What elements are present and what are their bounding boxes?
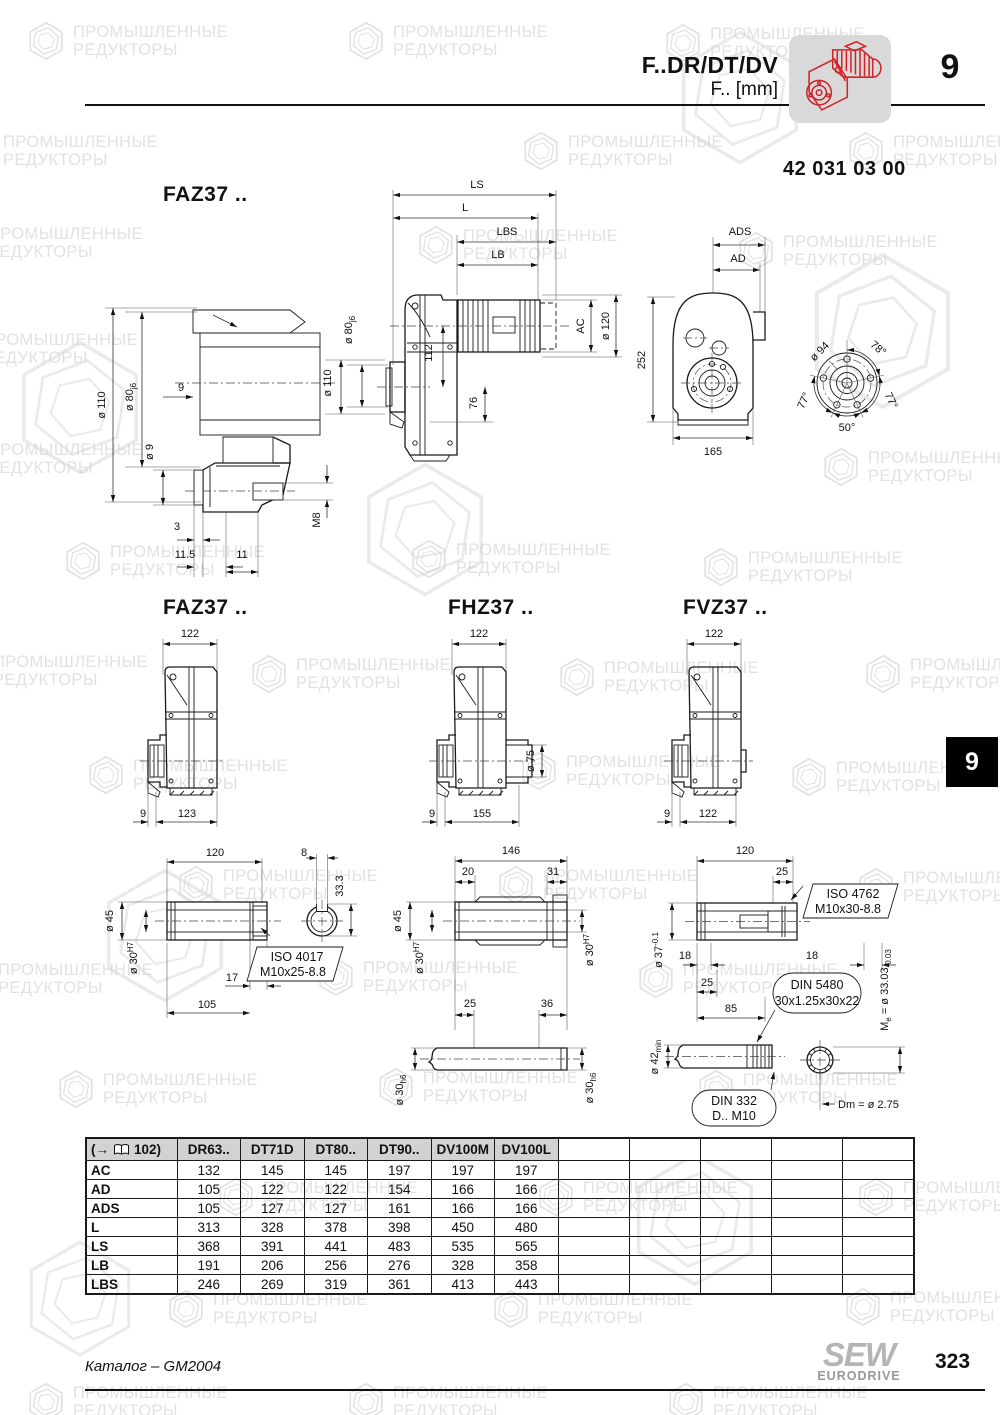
col-header: DV100M (431, 1138, 495, 1161)
dim-s2-d30h6-left: ø 30h6 (394, 1074, 408, 1105)
hub-section-view: ø 110 ø 80j6 9 ø 9 (96, 308, 335, 577)
sew-eurodrive-logo: SEW EURODRIVE (800, 1340, 918, 1382)
table-row: L 313 328 378 398 450 480 (86, 1218, 914, 1237)
dim-angle-50: 50° (839, 422, 856, 434)
empty-cell (772, 1275, 843, 1295)
empty-cell (558, 1256, 629, 1275)
col-header: DT71D (241, 1138, 305, 1161)
ref-page: 102) (134, 1142, 161, 1157)
dim-angle-78: 78° (868, 339, 888, 359)
cell: 127 (304, 1199, 368, 1218)
cell: 191 (177, 1256, 241, 1275)
eurodrive-logo-text: EURODRIVE (804, 1370, 914, 1383)
dim-s3-d37: ø 37-0.1 (651, 932, 665, 968)
dim-s2-d30-left: ø 30H7 (412, 941, 426, 974)
cell: 256 (304, 1256, 368, 1275)
dim-s2-d30h6-right: ø 30h6 (584, 1072, 598, 1103)
cell: 328 (241, 1218, 305, 1237)
dim-s2-d45: ø 45 (392, 910, 404, 932)
side-tab-number: 9 (965, 748, 979, 777)
dim-s1-8: 8 (301, 847, 307, 859)
dim-ls: LS (470, 179, 483, 191)
dim-hub-d80: ø 80j6 (124, 382, 138, 411)
dim-fhz-122: 122 (470, 628, 488, 640)
dim-hub-3: 3 (174, 521, 180, 533)
cell: 166 (431, 1199, 495, 1218)
cell: 105 (177, 1199, 241, 1218)
dim-s2-20: 20 (462, 866, 474, 878)
dim-s3-18r: 18 (806, 950, 818, 962)
dim-s2-31: 31 (547, 866, 559, 878)
col-header: DR63.. (177, 1138, 241, 1161)
empty-cell (558, 1180, 629, 1199)
dim-s3-d42: ø 42min (649, 1040, 663, 1075)
empty-cell (629, 1218, 700, 1237)
empty-col-header (843, 1138, 914, 1161)
empty-cell (700, 1218, 771, 1237)
row-label: AC (86, 1161, 177, 1180)
dim-hub-d110: ø 110 (96, 391, 108, 418)
chapter-side-tab: 9 (946, 737, 998, 787)
cell: 132 (177, 1161, 241, 1180)
table-row: LS 368 391 441 483 535 565 (86, 1237, 914, 1256)
cell: 358 (495, 1256, 559, 1275)
empty-cell (629, 1237, 700, 1256)
empty-cell (629, 1180, 700, 1199)
cell: 145 (241, 1161, 305, 1180)
main-dimension-drawing: ø 110 ø 80j6 9 ø 9 (85, 175, 985, 595)
gearmotor-icon (794, 39, 886, 119)
row-label: L (86, 1218, 177, 1237)
col-header: DV100L (495, 1138, 559, 1161)
dim-s3-dm: Dm = ø 2.75 (838, 1099, 899, 1111)
dim-s3-25: 25 (701, 977, 713, 989)
cell: 105 (177, 1180, 241, 1199)
cell: 161 (368, 1199, 432, 1218)
dim-l: L (462, 202, 468, 214)
empty-col-header (558, 1138, 629, 1161)
empty-cell (843, 1237, 914, 1256)
dim-fvz-122b: 122 (699, 808, 717, 820)
chapter-number: 9 (905, 48, 995, 87)
dim-s1-d30: ø 30H7 (126, 941, 140, 974)
dim-252: 252 (636, 351, 648, 369)
cell: 122 (304, 1180, 368, 1199)
dim-s3-me: Me = ø 33.03-0.03 (879, 949, 893, 1031)
dim-fhz-d75: ø 75 (525, 750, 537, 772)
fhz37-view: 122 ø 75 (422, 628, 547, 827)
dim-ad: AD (730, 253, 745, 265)
row-label: LB (86, 1256, 177, 1275)
callout-din5480: DIN 5480 (791, 978, 844, 992)
dim-s1-d45: ø 45 (104, 910, 116, 932)
dim-ads: ADS (729, 226, 752, 238)
dim-s1-333: 33.3 (334, 875, 346, 896)
empty-cell (772, 1161, 843, 1180)
cell: 145 (304, 1161, 368, 1180)
dim-side-d120: ø 120 (600, 312, 612, 340)
table-row: ADS 105 127 127 161 166 166 (86, 1199, 914, 1218)
empty-cell (700, 1275, 771, 1295)
catalog-page: ПРОМЫШЛЕННЫЕ РЕДУКТОРЫ ПРОМЫШЛЕННЫЕ РЕДУ… (0, 0, 1000, 1415)
dim-s1-120: 120 (206, 847, 224, 859)
sew-logo-text: SEW (804, 1340, 914, 1370)
row-label: ADS (86, 1199, 177, 1218)
footer-catalog-label: Каталог – GM2004 (85, 1358, 221, 1375)
empty-cell (700, 1199, 771, 1218)
shaft-detail-drawings: 120 ø 45 ø 30H7 (85, 840, 985, 1140)
cell: 276 (368, 1256, 432, 1275)
cell: 328 (431, 1256, 495, 1275)
dim-side-d80: ø 80j6 (343, 315, 357, 344)
dim-s2-d30-right: ø 30H7 (582, 933, 596, 966)
cell: 197 (368, 1161, 432, 1180)
col-header: DT80.. (304, 1138, 368, 1161)
cell: 166 (431, 1180, 495, 1199)
table-header-row: (→ 102) DR63.. DT71D DT80.. DT90.. DV100… (86, 1138, 914, 1161)
cell: 197 (495, 1161, 559, 1180)
empty-cell (700, 1180, 771, 1199)
empty-cell (558, 1275, 629, 1295)
callout-din332-size: D.. M10 (712, 1109, 756, 1123)
dim-s3-25top: 25 (776, 866, 788, 878)
dim-s2-36: 36 (541, 998, 553, 1010)
dim-s1-17: 17 (226, 972, 238, 984)
cell: 565 (495, 1237, 559, 1256)
dim-hub-11: 11 (236, 549, 247, 561)
empty-col-header (629, 1138, 700, 1161)
dim-side-76: 76 (468, 397, 480, 409)
dim-s3-18l: 18 (679, 950, 691, 962)
dim-angle-77l: 77° (795, 391, 813, 411)
cell: 535 (431, 1237, 495, 1256)
dim-hub-m8: M8 (311, 512, 323, 527)
empty-col-header (700, 1138, 771, 1161)
dim-faz-122: 122 (181, 628, 199, 640)
front-view: ADS AD 252 165 (636, 226, 900, 458)
cell: 413 (431, 1275, 495, 1295)
dim-s1-105: 105 (198, 999, 216, 1011)
dim-s3-85: 85 (725, 1003, 737, 1015)
cell: 166 (495, 1199, 559, 1218)
shaft-detail-fhz: 146 20 31 ø 45 (392, 845, 598, 1105)
dim-fhz-155: 155 (473, 808, 491, 820)
empty-col-header (772, 1138, 843, 1161)
table-row: AC 132 145 145 197 197 197 (86, 1161, 914, 1180)
dim-side-d110: ø 110 (322, 369, 334, 396)
col-header: DT90.. (368, 1138, 432, 1161)
row-label: AD (86, 1180, 177, 1199)
empty-cell (772, 1199, 843, 1218)
dim-hub-gap9: 9 (178, 382, 184, 394)
dim-hub-d9: ø 9 (144, 444, 156, 460)
dim-s2-25: 25 (464, 998, 476, 1010)
cell: 197 (431, 1161, 495, 1180)
row-label: LBS (86, 1275, 177, 1295)
variant-views-drawing: 122 9 123 (85, 595, 985, 845)
dim-side-112: 112 (423, 344, 435, 362)
page-subtitle: F.. [mm] (500, 79, 778, 101)
empty-cell (629, 1275, 700, 1295)
table-row: LBS 246 269 319 361 413 443 (86, 1275, 914, 1295)
page-number: 323 (920, 1350, 985, 1374)
empty-cell (558, 1237, 629, 1256)
dim-faz-123: 123 (178, 808, 196, 820)
empty-cell (772, 1256, 843, 1275)
dim-fvz-9: 9 (664, 808, 670, 820)
cell: 483 (368, 1237, 432, 1256)
empty-cell (558, 1199, 629, 1218)
spline-section: Dm = ø 2.75 (800, 1040, 905, 1111)
empty-cell (629, 1256, 700, 1275)
empty-cell (772, 1237, 843, 1256)
row-label: LS (86, 1237, 177, 1256)
cell: 480 (495, 1218, 559, 1237)
shaft-detail-fvz: 120 25 ISO 4762 M10x30-8.8 (649, 845, 905, 1126)
dim-lbs: LBS (497, 226, 518, 238)
empty-cell (843, 1161, 914, 1180)
callout-iso4762: ISO 4762 (827, 887, 880, 901)
callout-din332: DIN 332 (711, 1094, 757, 1108)
dim-hub-115: 11.5 (175, 549, 196, 561)
dimension-table: (→ 102) DR63.. DT71D DT80.. DT90.. DV100… (85, 1137, 915, 1295)
cell: 122 (241, 1180, 305, 1199)
callout-din5480-size: 30x1.25x30x22 (775, 994, 860, 1008)
dim-fhz-9: 9 (429, 808, 435, 820)
empty-cell (700, 1256, 771, 1275)
empty-cell (558, 1218, 629, 1237)
cell: 368 (177, 1237, 241, 1256)
side-view: LS L LBS LB (322, 179, 622, 461)
dim-fvz-122: 122 (705, 628, 723, 640)
dim-s2-146: 146 (502, 845, 520, 857)
empty-cell (843, 1275, 914, 1295)
table-ref-cell: (→ 102) (86, 1138, 177, 1161)
table-row: AD 105 122 122 154 166 166 (86, 1180, 914, 1199)
cell: 398 (368, 1218, 432, 1237)
cell: 313 (177, 1218, 241, 1237)
callout-iso4017: ISO 4017 (271, 950, 324, 964)
dim-angle-77r: 77° (882, 391, 900, 411)
dim-side-ac: AC (575, 318, 587, 333)
dim-165: 165 (704, 446, 722, 458)
empty-cell (700, 1161, 771, 1180)
empty-cell (629, 1199, 700, 1218)
cell: 206 (241, 1256, 305, 1275)
gearmotor-icon-box (789, 35, 891, 123)
empty-cell (700, 1237, 771, 1256)
callout-iso4762-size: M10x30-8.8 (815, 902, 881, 916)
cell: 391 (241, 1237, 305, 1256)
dim-s3-120: 120 (736, 845, 754, 857)
fvz37-view: 122 9 122 (657, 628, 753, 827)
cell: 443 (495, 1275, 559, 1295)
empty-cell (772, 1218, 843, 1237)
cell: 361 (368, 1275, 432, 1295)
empty-cell (558, 1161, 629, 1180)
cell: 154 (368, 1180, 432, 1199)
cell: 441 (304, 1237, 368, 1256)
cell: 319 (304, 1275, 368, 1295)
empty-cell (843, 1256, 914, 1275)
dim-faz-9: 9 (140, 808, 146, 820)
dim-d94: ø 94 (808, 340, 832, 364)
cell: 269 (241, 1275, 305, 1295)
empty-cell (843, 1199, 914, 1218)
table-row: LB 191 206 256 276 328 358 (86, 1256, 914, 1275)
book-icon (113, 1143, 130, 1156)
cell: 127 (241, 1199, 305, 1218)
dim-lb: LB (491, 249, 504, 261)
bolt-circle-detail: 78° 77° 77° 50° ø 94 (795, 339, 899, 434)
empty-cell (843, 1180, 914, 1199)
faz37-view: 122 9 123 (133, 628, 225, 827)
page-title: F..DR/DT/DV (500, 52, 778, 79)
cell: 378 (304, 1218, 368, 1237)
empty-cell (629, 1161, 700, 1180)
cell: 166 (495, 1180, 559, 1199)
callout-iso4017-size: M10x25-8.8 (260, 965, 326, 979)
shaft-detail-faz: 120 ø 45 ø 30H7 (104, 847, 357, 1018)
ref-open: (→ (91, 1142, 109, 1157)
cell: 246 (177, 1275, 241, 1295)
empty-cell (843, 1218, 914, 1237)
cell: 450 (431, 1218, 495, 1237)
footer-rule (85, 1389, 985, 1391)
empty-cell (772, 1180, 843, 1199)
